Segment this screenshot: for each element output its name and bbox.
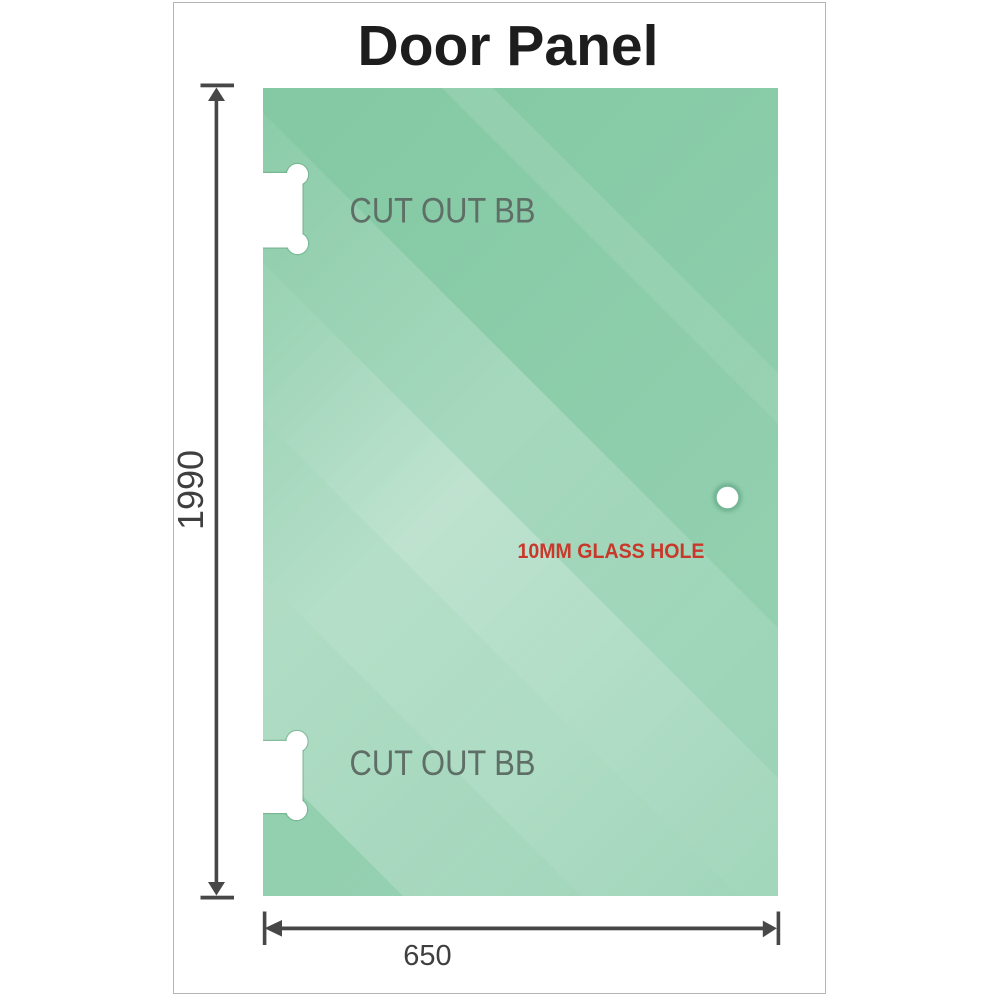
svg-text:CUT OUT BB: CUT OUT BB: [350, 744, 536, 783]
svg-text:10MM GLASS HOLE: 10MM GLASS HOLE: [518, 540, 705, 563]
svg-text:Door Panel: Door Panel: [358, 14, 659, 78]
svg-text:CUT OUT BB: CUT OUT BB: [350, 192, 536, 231]
svg-text:650: 650: [403, 940, 451, 972]
svg-text:1990: 1990: [170, 450, 211, 530]
